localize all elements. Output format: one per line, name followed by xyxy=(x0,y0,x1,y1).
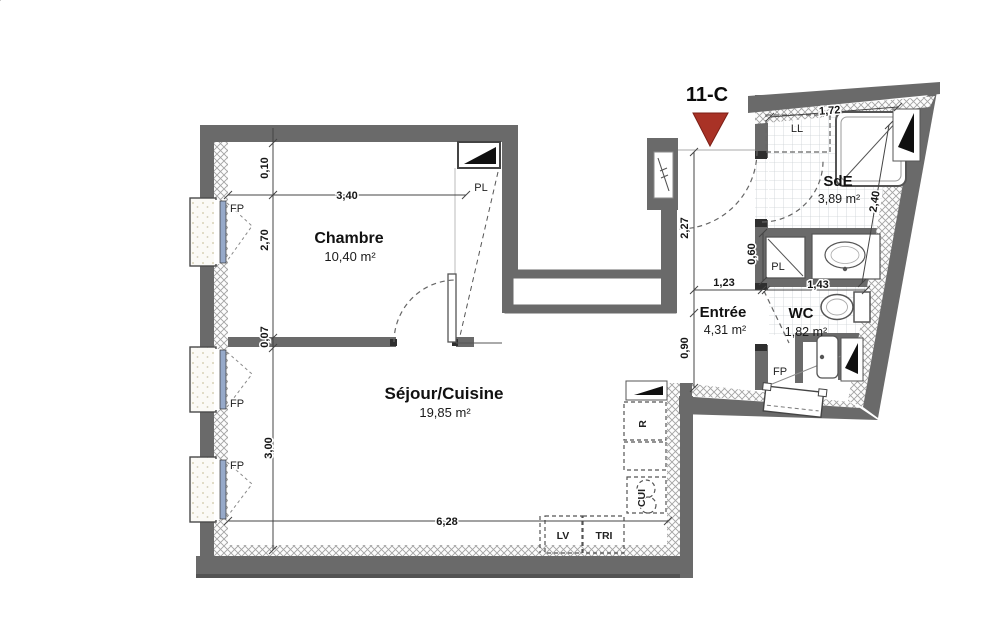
wc-label: WC xyxy=(789,305,814,322)
sde-door-threshold xyxy=(755,158,768,220)
dim-entree-width: 1,23 xyxy=(713,277,734,289)
unit-marker: 11-C xyxy=(686,84,728,146)
duct-sde xyxy=(893,109,920,161)
dim-sejour-height: 3,00 xyxy=(263,437,275,458)
wall-wc-zone-left xyxy=(795,342,803,383)
dim-chambre-height: 2,70 xyxy=(259,229,271,250)
duct-sejour xyxy=(626,381,667,400)
duct-block xyxy=(509,274,672,309)
wall-chambre-top xyxy=(200,125,518,142)
window-entree xyxy=(760,383,827,418)
wall-divider xyxy=(228,337,396,347)
duct-wc xyxy=(841,338,863,381)
sejour-area: 19,85 m² xyxy=(419,405,471,420)
window-label-chambre: FP xyxy=(230,203,244,215)
wall-pl-divider xyxy=(805,237,812,278)
chambre-area: 10,40 m² xyxy=(324,249,376,264)
cooktop-label: CUI xyxy=(636,489,648,507)
fridge-label: R xyxy=(637,420,649,428)
entree-label: Entrée xyxy=(700,304,747,321)
dim-wc-width: 1,43 xyxy=(807,279,828,291)
wall-bottom-insulation xyxy=(214,545,680,557)
wall-bottom-edge xyxy=(196,574,693,578)
unit-number: 11-C xyxy=(686,84,728,106)
dim-chambre-width: 3,40 xyxy=(336,190,357,202)
entree-area: 4,31 m² xyxy=(704,323,746,337)
toilet xyxy=(821,292,870,322)
waste-sorting-label: TRI xyxy=(596,530,613,542)
dim-sde-width: 1,72 xyxy=(819,104,841,117)
chambre-closet xyxy=(455,168,502,343)
counter-box xyxy=(624,442,666,470)
washbasin xyxy=(812,234,880,279)
wall-divider-stub xyxy=(456,337,474,347)
dishwasher-label: LV xyxy=(557,530,570,542)
hand-basin xyxy=(817,336,838,378)
door-jambs xyxy=(390,151,767,351)
floor-plan-page: 3,40 0,10 2,70 0,07 3,00 6,28 2,27 1,23 … xyxy=(0,0,1000,633)
dim-passage-width: 0,90 xyxy=(679,337,691,358)
entrance-marker-icon xyxy=(693,113,728,146)
chambre-label: Chambre xyxy=(314,230,383,247)
sejour-label: Séjour/Cuisine xyxy=(384,384,503,403)
chambre-door-leaf xyxy=(448,274,456,342)
duct-chambre-closet xyxy=(458,142,500,168)
floor-plan-drawing: 3,40 0,10 2,70 0,07 3,00 6,28 2,27 1,23 … xyxy=(0,0,1000,633)
dim-closet-depth: 0,60 xyxy=(746,243,758,264)
window-label-sejour-lower: FP xyxy=(230,460,244,472)
closet-label-chambre: PL xyxy=(474,182,487,194)
window-label-entree: FP xyxy=(773,366,787,378)
dim-sejour-width: 6,28 xyxy=(436,516,457,528)
wc-area: 1,82 m² xyxy=(785,325,827,339)
closet-label-sde: PL xyxy=(771,261,784,273)
sde-area: 3,89 m² xyxy=(818,192,860,206)
sde-label: SdE xyxy=(823,173,852,190)
dim-entree-height: 2,27 xyxy=(679,217,691,238)
washing-machine-label: LL xyxy=(791,123,803,135)
window-label-sejour-upper: FP xyxy=(230,398,244,410)
dim-wall-top: 0,10 xyxy=(259,157,271,178)
chambre-door-swing xyxy=(394,280,456,342)
dim-wall-mid: 0,07 xyxy=(259,326,271,347)
